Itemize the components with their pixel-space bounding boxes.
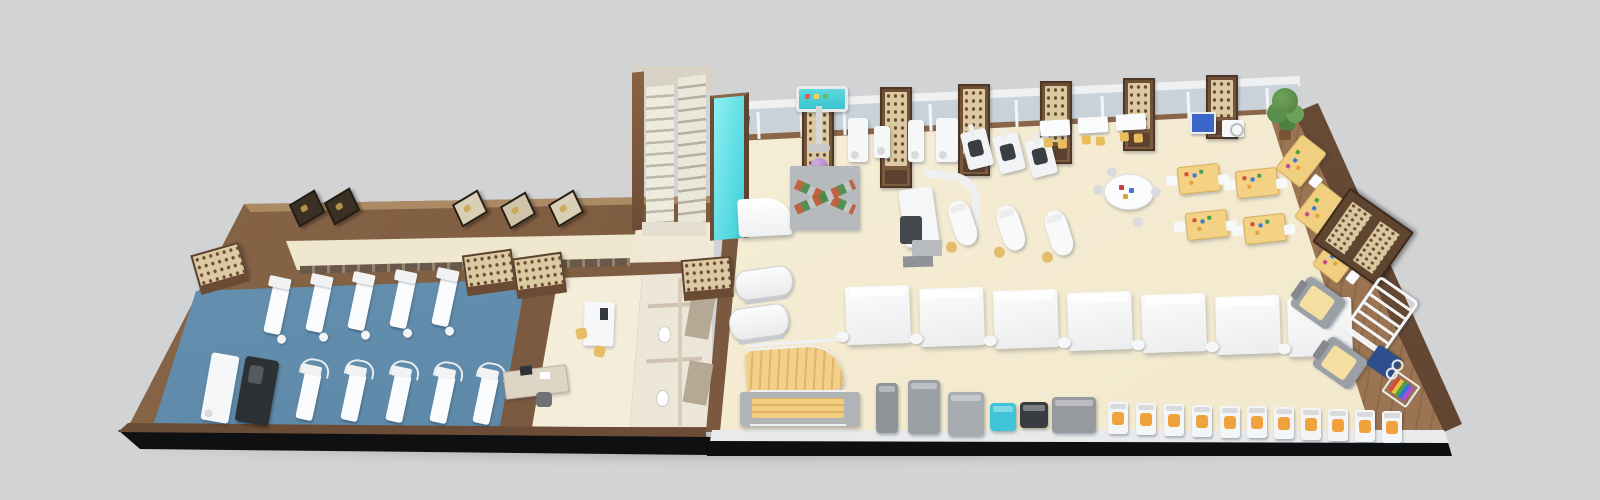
- staircase: [632, 66, 716, 236]
- stair-wood-frame: [632, 71, 644, 230]
- parallel-bars-rail: [750, 424, 846, 426]
- parallel-bars-rail: [750, 390, 846, 392]
- side-desk: [583, 301, 615, 346]
- potted-plant: [1268, 88, 1302, 140]
- stair-landing: [642, 222, 706, 236]
- side-desk-monitor: [600, 308, 608, 320]
- robot-gait-trainer-platform: [912, 240, 942, 256]
- desk-monitor: [519, 365, 532, 375]
- dial-device-knob: [1230, 123, 1244, 137]
- parallel-bars-walkway: [752, 398, 844, 418]
- exercise-mat: [790, 166, 860, 230]
- stair-flight-right: [678, 74, 706, 227]
- desk-papers: [540, 372, 550, 379]
- monitor-device: [1190, 112, 1216, 134]
- screen-pole: [816, 106, 822, 146]
- restroom-partition: [678, 278, 682, 426]
- toilet: [658, 326, 671, 343]
- screen-base: [808, 144, 830, 152]
- toilet: [656, 390, 669, 407]
- yellow-chair: [575, 327, 588, 340]
- stair-flight-left: [646, 85, 674, 225]
- floorplan-scene: [0, 0, 1600, 500]
- group-activity-table: [1104, 174, 1154, 210]
- floor-mat: [903, 255, 933, 267]
- office-chair: [536, 392, 552, 407]
- training-screen: [796, 86, 848, 112]
